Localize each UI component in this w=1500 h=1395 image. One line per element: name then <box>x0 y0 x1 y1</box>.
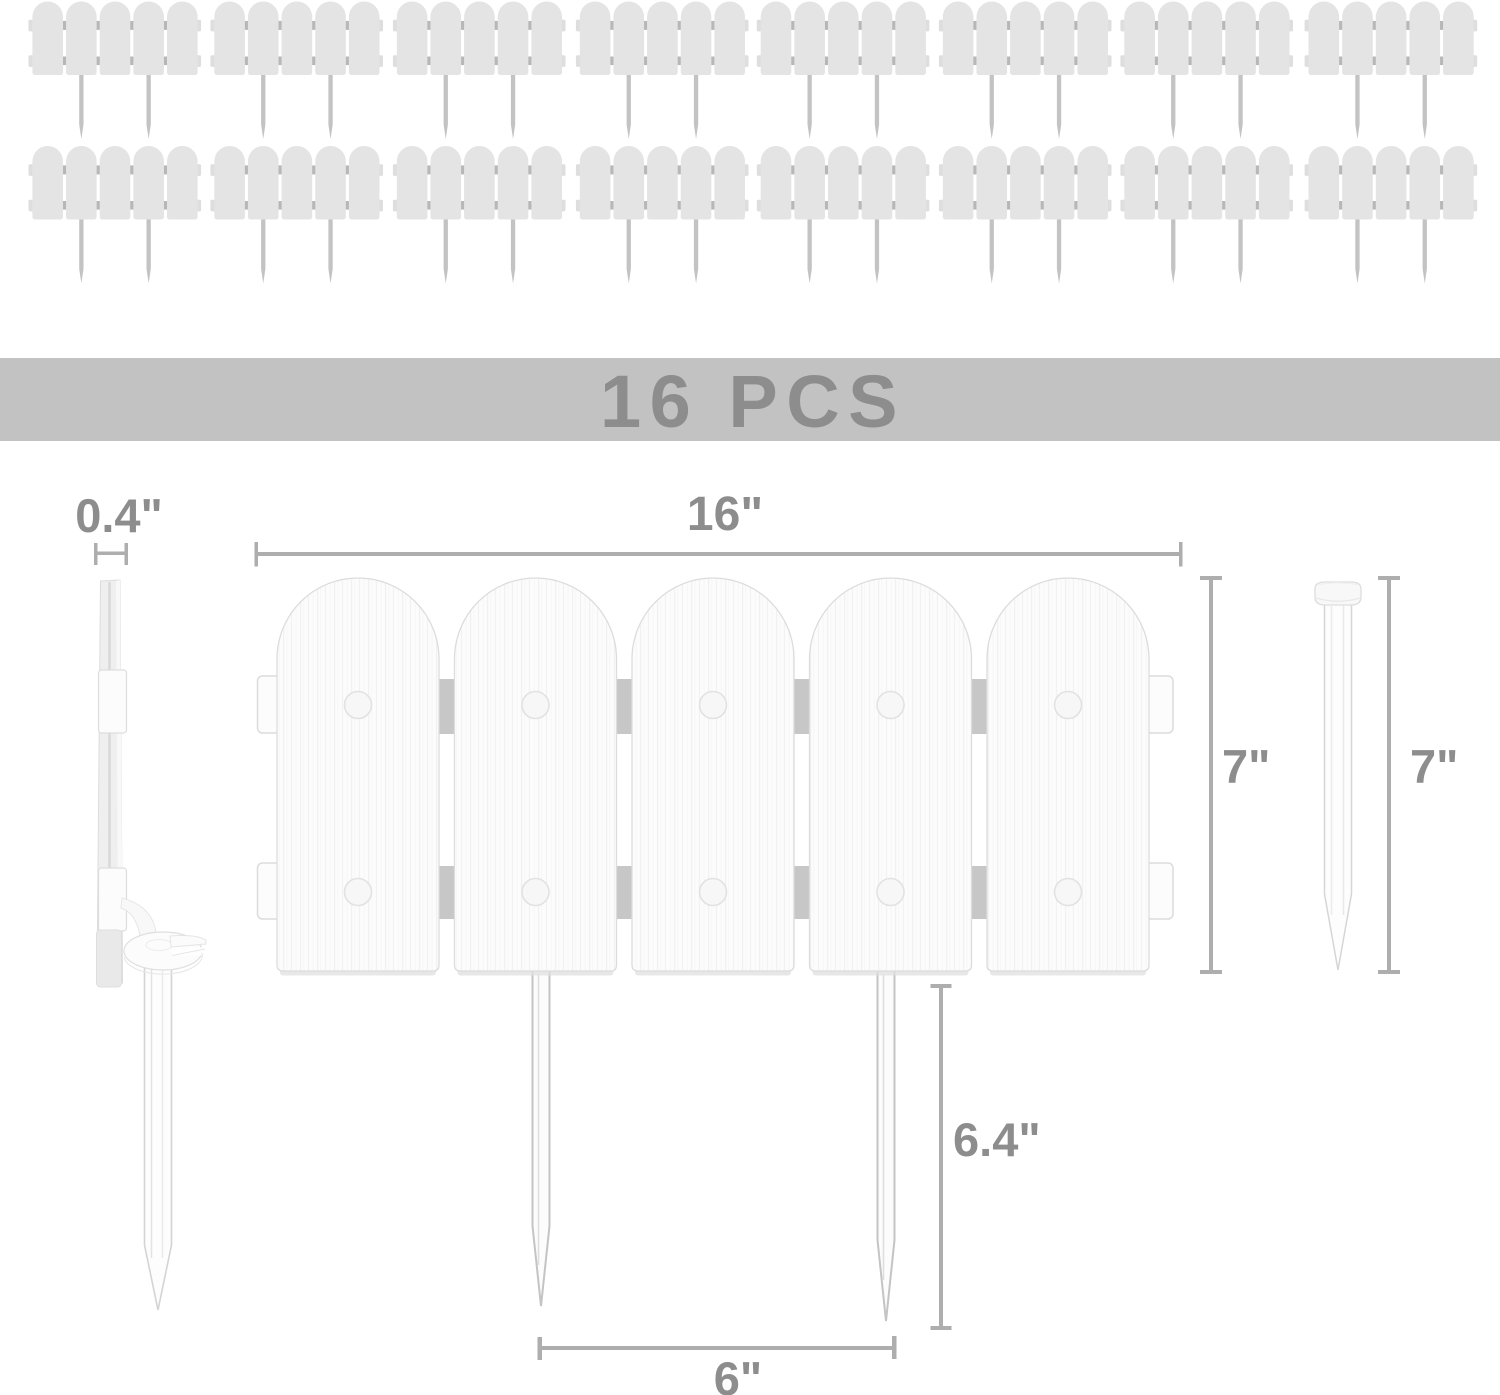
svg-text:6.4": 6.4" <box>953 1113 1041 1166</box>
svg-text:7": 7" <box>1410 740 1458 793</box>
svg-text:7": 7" <box>1222 740 1270 793</box>
svg-text:6": 6" <box>714 1352 762 1395</box>
svg-text:16": 16" <box>687 488 763 541</box>
svg-text:16 PCS: 16 PCS <box>600 360 906 443</box>
svg-text:0.4": 0.4" <box>75 489 163 542</box>
